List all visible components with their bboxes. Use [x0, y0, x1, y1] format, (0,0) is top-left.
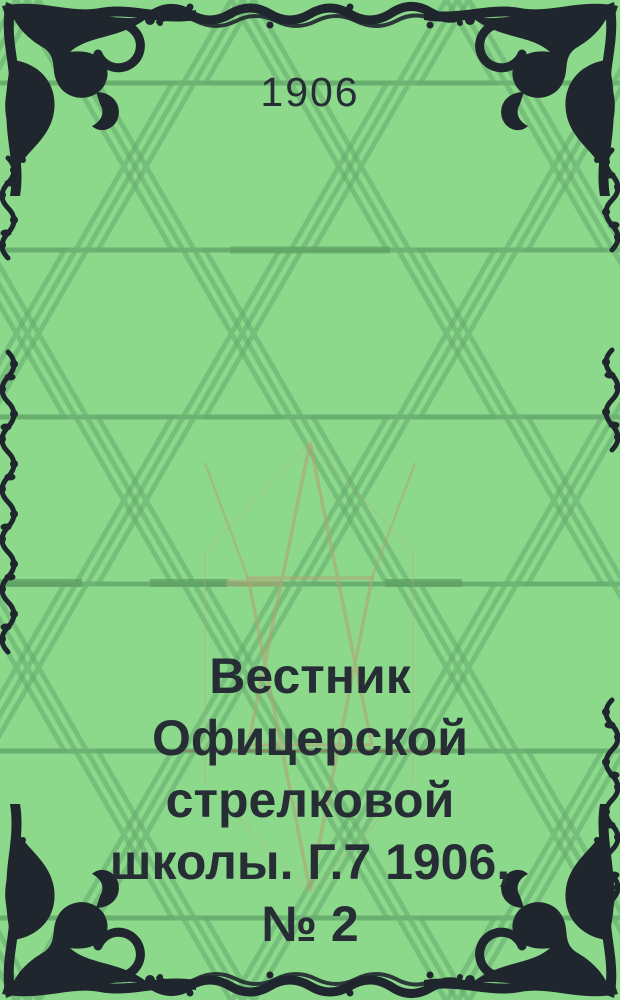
title-line: стрелковой: [0, 769, 620, 831]
book-cover: 1906 Вестник Офицерской стрелковой школы…: [0, 0, 620, 1000]
border-vine-top: [150, 4, 460, 28]
year-label: 1906: [0, 72, 620, 113]
title-line: Вестник: [0, 645, 620, 707]
title-line: школы. Г.7 1906,: [0, 831, 620, 893]
title-line: Офицерской: [0, 707, 620, 769]
border-vine-bottom: [150, 972, 460, 996]
issue-number-line: № 2: [0, 893, 620, 955]
cover-title: Вестник Офицерской стрелковой школы. Г.7…: [0, 645, 620, 955]
border-vine-left: [0, 158, 18, 652]
